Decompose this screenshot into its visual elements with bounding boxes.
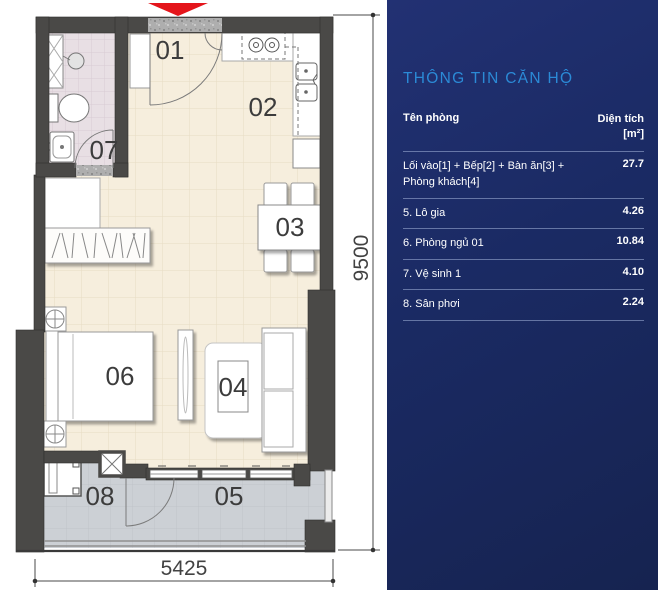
table-row: 6. Phòng ngủ 01 10.84 [403, 229, 644, 260]
room-name: 5. Lô gia [403, 205, 585, 222]
column-area-unit: [m²] [598, 127, 644, 142]
dim-width-label: 5425 [161, 557, 208, 580]
column-area: Diện tích [m²] [598, 112, 644, 143]
apartment-info-panel: THÔNG TIN CĂN HỘ Tên phòng Diện tích [m²… [387, 0, 658, 590]
duct-box [100, 452, 124, 476]
room-area: 2.24 [623, 296, 644, 308]
table-row: Lối vào[1] + Bếp[2] + Bàn ăn[3] + Phòng … [403, 152, 644, 199]
room-area: 27.7 [623, 158, 644, 170]
bed [46, 329, 153, 423]
room-label-07: 07 [90, 135, 119, 165]
dim-height-label: 9500 [350, 235, 373, 282]
table-header: Tên phòng Diện tích [m²] [403, 112, 644, 152]
table-row: 5. Lô gia 4.26 [403, 199, 644, 230]
column-room-name: Tên phòng [403, 112, 459, 124]
room-label-01: 01 [156, 35, 185, 65]
bath-sink-icon [46, 132, 74, 162]
room-label-05: 05 [215, 481, 244, 511]
room-label-03: 03 [276, 212, 305, 242]
room-name: 8. Sân phơi [403, 296, 585, 313]
room-label-04: 04 [219, 372, 248, 402]
table-row: 8. Sân phơi 2.24 [403, 290, 644, 321]
room-label-08: 08 [86, 481, 115, 511]
panel-title: THÔNG TIN CĂN HỘ [403, 70, 644, 88]
loggia-side-rail [325, 470, 332, 522]
floor-plan-drawing: 9500 5425 01 02 03 04 05 06 07 08 [0, 0, 387, 590]
room-area-table: Tên phòng Diện tích [m²] Lối vào[1] + Bế… [403, 112, 644, 321]
room-label-02: 02 [249, 92, 278, 122]
room-label-06: 06 [106, 361, 135, 391]
room-name: 6. Phòng ngủ 01 [403, 235, 585, 252]
column-area-label: Diện tích [598, 112, 644, 127]
table-row: 7. Vệ sinh 1 4.10 [403, 260, 644, 291]
wardrobe [178, 330, 193, 420]
fridge [293, 139, 320, 168]
room-area: 4.26 [623, 205, 644, 217]
apartment-floorplan-page: 9500 5425 01 02 03 04 05 06 07 08 THÔNG [0, 0, 658, 590]
washing-machine-icon [44, 458, 81, 496]
entry-closet [130, 34, 150, 88]
room-area: 10.84 [616, 235, 644, 247]
shelf-unit [45, 228, 150, 263]
dimension-height: 9500 [333, 13, 380, 553]
room-area: 4.10 [623, 266, 644, 278]
entry-threshold [148, 18, 222, 32]
sofa [262, 328, 306, 452]
toilet-icon [48, 94, 89, 122]
room-name: 7. Vệ sinh 1 [403, 266, 585, 283]
floor-plan: 9500 5425 01 02 03 04 05 06 07 08 [0, 0, 387, 590]
entrance-arrow-icon [148, 3, 208, 16]
cabinet [45, 178, 100, 228]
room-name: Lối vào[1] + Bếp[2] + Bàn ăn[3] + Phòng … [403, 158, 585, 191]
dimension-width: 5425 [33, 557, 336, 587]
bath-threshold [76, 165, 113, 176]
